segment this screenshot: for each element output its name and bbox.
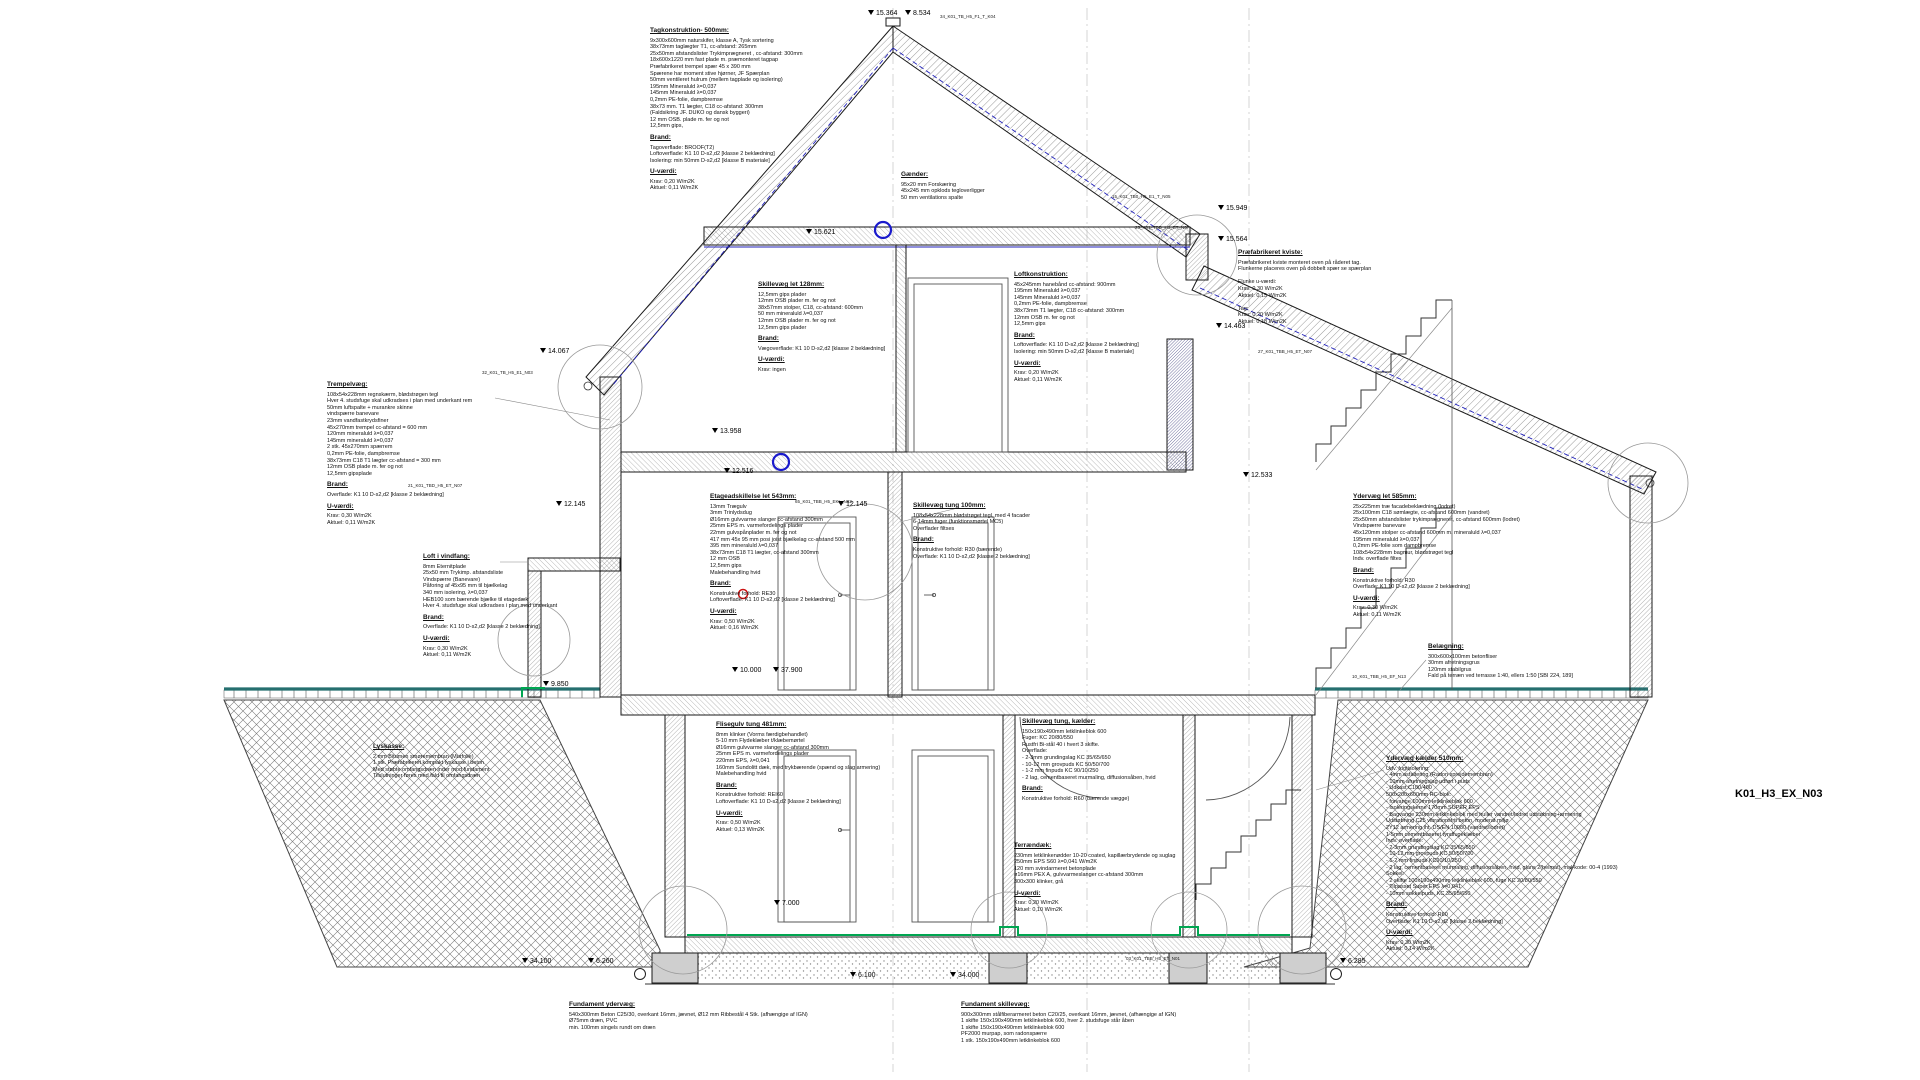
note-skillevaeg-tung-100: Skillevæg tung 100mm: 108x54x228mm bløds… <box>913 503 1091 560</box>
note-u-title: U-værdi: <box>758 357 933 364</box>
note-brand-lines: Loftoverflade: K1 10 D-s2,d2 [klasse 2 b… <box>1014 342 1214 355</box>
note-gaender: Gænder: 95x20 mm Forskæring 45x245 mm op… <box>901 172 1031 201</box>
note-title: Belægning: <box>1428 644 1653 651</box>
note-u-title: U-værdi: <box>650 169 882 176</box>
note-tagkonstruktion: Tagkonstruktion- 500mm: 9x300x600mm natu… <box>650 28 882 192</box>
first-floor-deck <box>621 452 1186 472</box>
note-brand-title: Brand: <box>1022 786 1182 793</box>
note-u-lines: Krav: ingen <box>758 367 933 374</box>
note-u-title: U-værdi: <box>423 636 585 643</box>
note-skillevaeg-tung-kaelder: Skillevæg tung, kælder: 150x190x490mm le… <box>1022 719 1182 803</box>
level-marker: 37.900 <box>773 667 802 674</box>
note-brand-lines: Overflade: K1 10 D-s2,d2 [klasse 2 beklæ… <box>327 492 499 499</box>
note-brand-lines: Overflade: K1 10 D-s2,d2 [klasse 2 beklæ… <box>423 624 585 631</box>
note-trempelvaeg: Trempelvæg: 108x54x228mm regnskærm, blød… <box>327 382 499 526</box>
note-title: Trempelvæg: <box>327 382 499 389</box>
note-u-title: U-værdi: <box>1353 596 1568 603</box>
note-fundament-ydervaeg: Fundament ydervæg: 540x300mm Beton C25/3… <box>569 1002 819 1031</box>
note-u-title: U-værdi: <box>327 504 499 511</box>
level-marker: 8.534 <box>905 10 931 17</box>
note-lines: 8mm klinker (Vorms færdigbehandlet) 5-10… <box>716 732 888 778</box>
note-title: Skillevæg let 128mm: <box>758 282 933 289</box>
note-ydervaeg-kaelder-510: Ydervæg kælder 510mm: Udv. fugtisolering… <box>1386 756 1626 953</box>
note-u-lines: Krav: 0,20 W/m2K Aktuel: 0,11 W/m2K <box>1014 370 1214 383</box>
level-marker: 34.100 <box>522 958 551 965</box>
note-brand-title: Brand: <box>1386 902 1626 909</box>
level-marker: 12.145 <box>556 501 585 508</box>
note-brand-lines: Tagoverflade: BROOF(T2) Loftoverflade: K… <box>650 145 882 165</box>
level-marker: 14.463 <box>1216 323 1245 330</box>
ref-label: 25_K01_TBD_H5_ET_N07 <box>1135 225 1189 230</box>
note-u-lines: Krav: 0,20 W/m2K Aktuel: 0,11 W/m2K <box>650 179 882 192</box>
note-lines: 150x190x490mm letklinkeblok 600 Fuger: K… <box>1022 729 1182 782</box>
note-title: Loftkonstruktion: <box>1014 272 1214 279</box>
note-brand-title: Brand: <box>758 336 933 343</box>
note-title: Fundament skillevæg: <box>961 1002 1231 1009</box>
note-title: Skillevæg tung, kælder: <box>1022 719 1182 726</box>
loft-ceiling <box>704 227 1190 247</box>
ref-label: 10_K01_TBB_H5_EF_N13 <box>1352 674 1406 679</box>
note-lines: 45x245mm hanebånd cc-afstand: 900mm 195m… <box>1014 282 1214 328</box>
note-lines: 25x225mm træ facadebeklædning (lodret) 2… <box>1353 504 1568 563</box>
note-brand-lines: Konstruktive forhold: RE30 Loftoverflade… <box>710 591 886 604</box>
note-loftkonstruktion: Loftkonstruktion: 45x245mm hanebånd cc-a… <box>1014 272 1214 383</box>
ref-label: 15_K01_TB0_H5_E1_T_N05 <box>1112 194 1171 199</box>
note-title: Fundament ydervæg: <box>569 1002 819 1009</box>
note-brand-lines: Konstruktive forhold: R60 Overflade: K1 … <box>1386 912 1626 925</box>
note-u-title: U-værdi: <box>716 811 888 818</box>
note-u-lines: Krav: 0,30 W/m2K Aktuel: 0,11 W/m2K <box>1353 605 1568 618</box>
note-lines: 95x20 mm Forskæring 45x245 mm opklods te… <box>901 182 1031 202</box>
note-lines: 300x600x100mm betonfliser 30mm afretning… <box>1428 654 1653 680</box>
note-title: Tagkonstruktion- 500mm: <box>650 28 882 35</box>
note-title: Ydervæg let 585mm: <box>1353 494 1568 501</box>
note-brand-title: Brand: <box>650 135 882 142</box>
ref-label: 27_K01_TBB_H5_ET_N07 <box>1258 349 1312 354</box>
ref-label: 03_K01_TBB_H5_ET_N01 <box>1126 956 1180 961</box>
ground-floor-deck <box>621 695 1315 715</box>
note-u-title: U-værdi: <box>710 609 886 616</box>
note-lines: Præfabrikeret kviste monteret oven på rå… <box>1238 260 1443 326</box>
ref-label: 32_K01_TB_H5_E1_N03 <box>482 370 533 375</box>
note-brand-lines: Konstruktive forhold: R60 (bærende vægge… <box>1022 796 1182 803</box>
drawing-sheet: { "drawing_number": "K01_H3_EX_N03", "le… <box>0 0 1920 1080</box>
ref-label: 21_K01_TBD_H5_ET_N07 <box>408 483 462 488</box>
note-title: Præfabrikeret kviste: <box>1238 250 1443 257</box>
note-u-lines: Krav: 0,50 W/m2K Aktuel: 0,16 W/m2K <box>710 619 886 632</box>
note-lines: 12,5mm gips plader 12mm OSB plader m. fe… <box>758 292 933 332</box>
note-fundament-skillevaeg: Fundament skillevæg: 900x300mm stålfiber… <box>961 1002 1231 1045</box>
level-marker: 34.000 <box>950 972 979 979</box>
note-u-title: U-værdi: <box>1014 361 1214 368</box>
note-lines: 8mm Eternitplade 25x50 mm Trykimp. afsta… <box>423 564 585 610</box>
level-marker: 6.260 <box>588 958 614 965</box>
note-ydervaeg-let-585: Ydervæg let 585mm: 25x225mm træ facadebe… <box>1353 494 1568 619</box>
note-u-lines: Krav: 0,20 W/m2K Aktuel: 0,10 W/m2K <box>1014 900 1192 913</box>
level-marker: 15.564 <box>1218 236 1247 243</box>
note-title: Skillevæg tung 100mm: <box>913 503 1091 510</box>
level-marker: 10.000 <box>732 667 761 674</box>
note-u-title: U-værdi: <box>1014 891 1192 898</box>
note-lines: 900x300mm stålfiberarmeret beton C20/25,… <box>961 1012 1231 1045</box>
note-title: Terrændæk: <box>1014 843 1192 850</box>
note-brand-title: Brand: <box>710 581 886 588</box>
note-flisegulv-tung: Flisegulv tung 481mm: 8mm klinker (Vorms… <box>716 722 888 833</box>
note-brand-lines: Vægoverflade: K1 10 D-s2,d2 [klasse 2 be… <box>758 346 933 353</box>
note-lines: 540x300mm Beton C25/30, overkant 16mm, j… <box>569 1012 819 1032</box>
level-marker: 6.100 <box>850 972 876 979</box>
note-u-title: U-værdi: <box>1386 930 1626 937</box>
note-lines: 9x300x600mm naturskifer, klasse A, Tysk … <box>650 38 882 130</box>
note-brand-title: Brand: <box>1014 333 1214 340</box>
level-marker: 14.067 <box>540 348 569 355</box>
level-marker: 15.364 <box>868 10 897 17</box>
note-brand-lines: Konstruktive forhold: R30 (bærende) Over… <box>913 547 1091 560</box>
note-brand-lines: Konstruktive forhold: R30 Overflade: K1 … <box>1353 578 1568 591</box>
drawing-number: K01_H3_EX_N03 <box>1735 788 1822 800</box>
note-lines: 13mm Trægulv 3mm Trinlydsdug Ø16mm gulvv… <box>710 504 886 577</box>
note-loft-i-vindfang: Loft i vindfang: 8mm Eternitplade 25x50 … <box>423 554 585 659</box>
note-u-lines: Krav: 0,30 W/m2K Aktuel: 0,11 W/m2K <box>327 513 499 526</box>
note-lines: Udv. fugtisolering: - 4mm asfaltering (R… <box>1386 766 1626 898</box>
note-skillevaeg-let-128: Skillevæg let 128mm: 12,5mm gips plader … <box>758 282 933 374</box>
note-brand-title: Brand: <box>913 537 1091 544</box>
ref-label: 65_K01_TBB_H5_EKL_N03 <box>795 499 852 504</box>
note-brand-lines: Konstruktive forhold: REI60 Loftoverflad… <box>716 792 888 805</box>
note-u-lines: Krav: 0,30 W/m2K Aktuel: 0,11 W/m2K <box>423 646 585 659</box>
note-title: Flisegulv tung 481mm: <box>716 722 888 729</box>
note-lines: 230mm letklinkenødder 10-20 coated, kapi… <box>1014 853 1192 886</box>
level-marker: 12.516 <box>724 468 753 475</box>
note-lyskasse: Lyskasse: 2 mm Bitumen smøremembran (Mur… <box>373 744 541 780</box>
note-lines: 108x54x228mm blødstrøget tegl, med 4 fac… <box>913 513 1091 533</box>
level-marker: 12.533 <box>1243 472 1272 479</box>
note-praefab-kviste: Præfabrikeret kviste: Præfabrikeret kvis… <box>1238 250 1443 326</box>
note-terraendaek: Terrændæk: 230mm letklinkenødder 10-20 c… <box>1014 843 1192 913</box>
note-title: Lyskasse: <box>373 744 541 751</box>
note-etageadskillelse-let: Etageadskillelse let 543mm: 13mm Trægulv… <box>710 494 886 632</box>
note-title: Loft i vindfang: <box>423 554 585 561</box>
note-belaegning: Belægning: 300x600x100mm betonfliser 30m… <box>1428 644 1653 680</box>
note-lines: 2 mm Bitumen smøremembran (Murfolie) 1 s… <box>373 754 541 780</box>
level-marker: 15.949 <box>1218 205 1247 212</box>
level-marker: 9.850 <box>543 681 569 688</box>
level-marker: 13.958 <box>712 428 741 435</box>
note-u-lines: Krav: 0,30 W/m2K Aktuel: 0,14 W/m2K <box>1386 940 1626 953</box>
note-title: Ydervæg kælder 510mm: <box>1386 756 1626 763</box>
level-marker: 6.285 <box>1340 958 1366 965</box>
level-marker: 15.621 <box>806 229 835 236</box>
note-brand-title: Brand: <box>716 783 888 790</box>
note-u-lines: Krav: 0,50 W/m2K Aktuel: 0,13 W/m2K <box>716 820 888 833</box>
note-title: Gænder: <box>901 172 1031 179</box>
note-brand-title: Brand: <box>1353 568 1568 575</box>
note-lines: 108x54x228mm regnskærm, blødstrøgen tegl… <box>327 392 499 478</box>
note-brand-title: Brand: <box>423 615 585 622</box>
ref-label: 34_K01_TB_H5_F1_T_K04 <box>940 14 996 19</box>
level-marker: 7.000 <box>774 900 800 907</box>
